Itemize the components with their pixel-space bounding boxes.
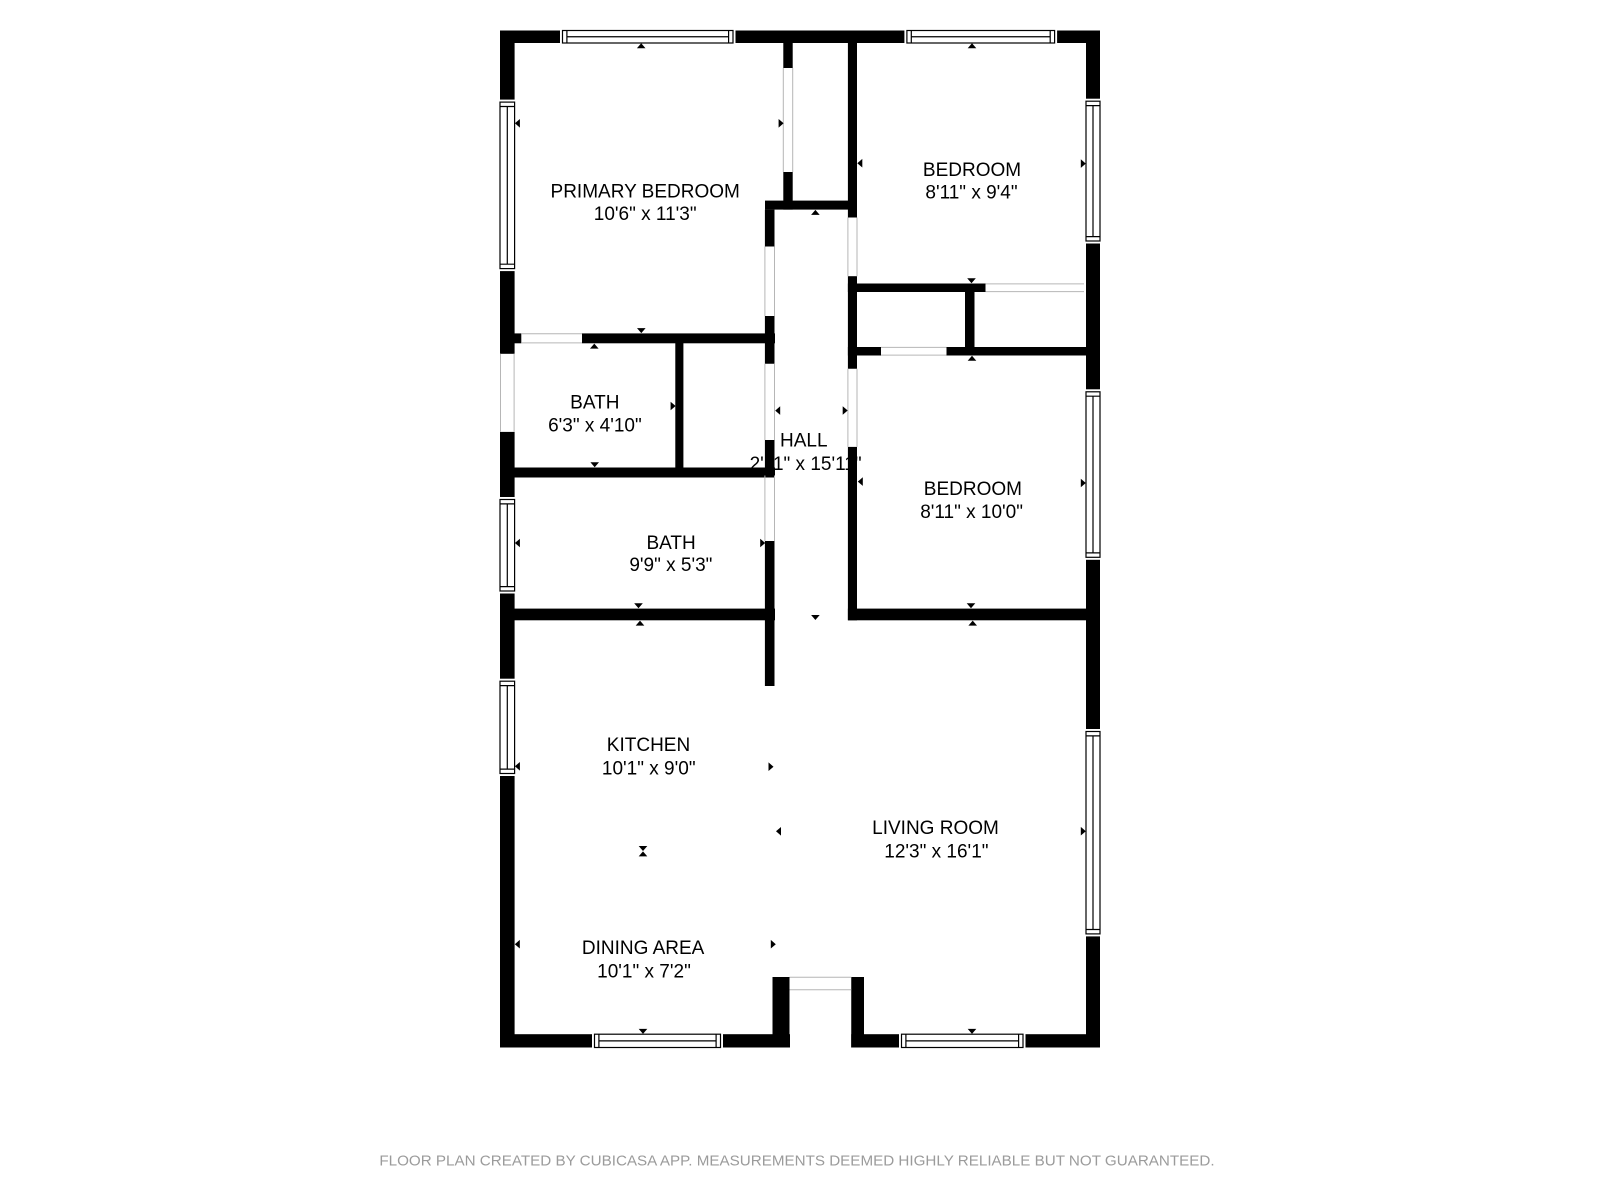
svg-text:2'11" x 15'11": 2'11" x 15'11" bbox=[750, 454, 862, 475]
svg-text:6'3" x 4'10": 6'3" x 4'10" bbox=[548, 415, 642, 436]
svg-text:KITCHEN: KITCHEN bbox=[607, 735, 690, 756]
svg-text:12'3" x 16'1": 12'3" x 16'1" bbox=[884, 842, 988, 863]
svg-text:PRIMARY BEDROOM: PRIMARY BEDROOM bbox=[551, 182, 740, 203]
svg-text:HALL: HALL bbox=[780, 431, 828, 452]
svg-text:8'11" x 9'4": 8'11" x 9'4" bbox=[925, 183, 1017, 204]
svg-text:FLOOR PLAN CREATED BY CUBICASA: FLOOR PLAN CREATED BY CUBICASA APP. MEAS… bbox=[379, 1152, 1214, 1169]
svg-text:BEDROOM: BEDROOM bbox=[924, 479, 1022, 500]
svg-text:BEDROOM: BEDROOM bbox=[923, 160, 1021, 181]
svg-text:9'9" x 5'3": 9'9" x 5'3" bbox=[629, 555, 712, 576]
svg-text:10'1" x 7'2": 10'1" x 7'2" bbox=[597, 962, 691, 983]
svg-text:BATH: BATH bbox=[646, 533, 695, 554]
svg-text:10'1" x 9'0": 10'1" x 9'0" bbox=[602, 758, 696, 779]
svg-text:LIVING ROOM: LIVING ROOM bbox=[872, 818, 999, 839]
svg-text:BATH: BATH bbox=[570, 393, 619, 414]
svg-text:DINING AREA: DINING AREA bbox=[582, 938, 705, 959]
svg-text:10'6" x 11'3": 10'6" x 11'3" bbox=[594, 204, 697, 225]
svg-text:8'11" x 10'0": 8'11" x 10'0" bbox=[920, 502, 1023, 523]
